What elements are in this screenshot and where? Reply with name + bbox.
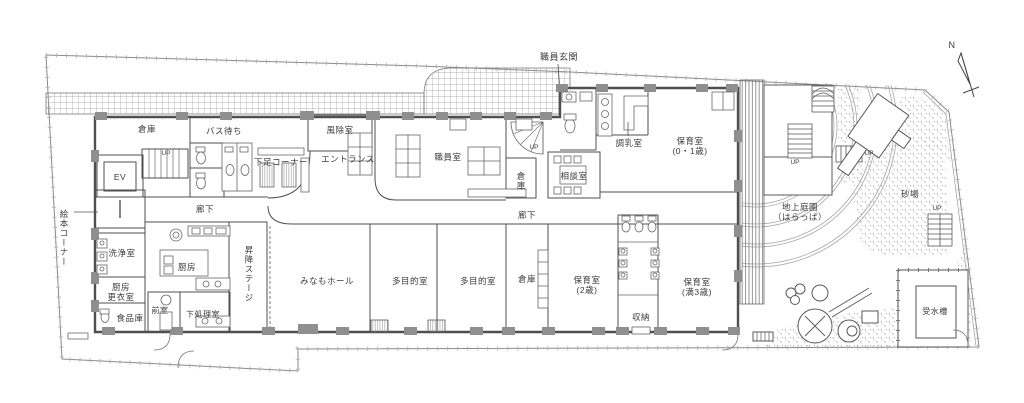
room-label-washing: 洗浄室 [108, 248, 135, 258]
room-label-ground-garden: 地上庭園（はらっぱ） [773, 202, 827, 222]
compass-icon [958, 53, 979, 97]
room-label-storage-top-left: 倉庫 [138, 124, 156, 134]
nursery-3-line2: (満3歳) [682, 287, 712, 297]
room-label-staff-room: 職員室 [434, 152, 461, 162]
nursery-2-line1: 保育室 [573, 275, 600, 285]
room-label-storage-center: 倉庫 [516, 172, 526, 191]
up-label-3: UP [790, 158, 799, 168]
floor-plan-drawing [0, 0, 1024, 403]
room-label-milk-prep: 調乳室 [615, 138, 642, 148]
room-label-minamo-hall: みなもホール [300, 276, 354, 286]
nursery-2-line2: (2歳) [577, 285, 598, 295]
wood-deck [740, 80, 764, 304]
room-label-storage-closet: 収納 [632, 312, 650, 322]
kitchen-changing-line1: 厨房 [112, 282, 130, 292]
room-label-nursery-0-1: 保育室(0・1歳) [672, 136, 707, 156]
room-label-nursery-2: 保育室(2歳) [573, 275, 600, 295]
room-label-consultation: 相談室 [560, 171, 587, 181]
kitchen-changing-line2: 更衣室 [107, 292, 134, 302]
nursery-0-1-line1: 保育室 [676, 136, 703, 146]
room-label-water-tank: 受水槽 [922, 307, 948, 317]
room-label-storage-south: 倉庫 [518, 274, 536, 284]
up-label-5: UP [932, 204, 941, 214]
room-label-nursery-3: 保育室(満3歳) [682, 277, 712, 297]
room-label-anteroom: 前室 [152, 306, 169, 316]
room-label-prep-room: 下処理室 [186, 310, 220, 320]
room-label-picture-book-corner: 絵本コーナー [59, 210, 69, 267]
up-label-1: UP [161, 149, 170, 159]
room-label-sandpit: 砂場 [901, 189, 919, 199]
up-label-2: UP [529, 143, 538, 153]
ground-garden-line1: 地上庭園 [782, 202, 818, 212]
compass-north-label: N [949, 40, 956, 50]
room-label-corridor-west: 廊下 [196, 204, 214, 214]
nursery-0-1-line2: (0・1歳) [672, 146, 707, 156]
room-label-multipurpose-2: 多目的室 [460, 276, 496, 286]
ground-garden-line2: （はらっぱ） [773, 212, 827, 222]
room-label-staff-entrance: 職員玄関 [540, 52, 578, 62]
room-label-entrance: エントランス [321, 154, 375, 164]
floor-plan: 職員玄関 倉庫 バス待ち EV 絵本コーナー 廊下 下足コーナー 風除室 エント… [0, 0, 1024, 403]
room-label-corridor-center: 廊下 [518, 210, 536, 220]
room-label-kitchen-changing: 厨房更衣室 [107, 282, 134, 302]
room-label-lift-stage: 昇降ステージ [244, 246, 254, 303]
room-label-bus-waiting: バス待ち [206, 126, 242, 136]
room-label-elevator: EV [114, 172, 126, 182]
room-label-windbreak: 風除室 [326, 125, 353, 135]
room-label-multipurpose-1: 多目的室 [392, 276, 428, 286]
walkway-hatch [46, 64, 570, 114]
room-label-kitchen: 厨房 [178, 262, 196, 272]
room-label-shoe-corner: 下足コーナー [254, 157, 308, 167]
room-label-food-storage: 食品庫 [116, 313, 143, 323]
nursery-3-line1: 保育室 [683, 277, 710, 287]
up-label-4: UP [864, 149, 873, 159]
